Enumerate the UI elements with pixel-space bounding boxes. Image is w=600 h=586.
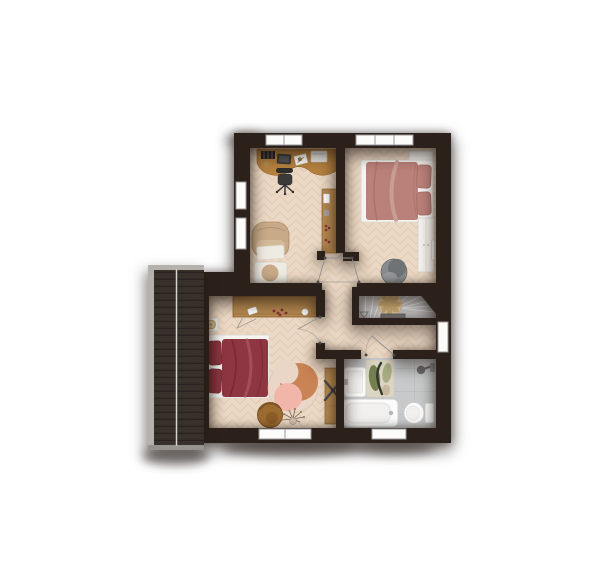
double-bed: [361, 160, 433, 222]
throw-blanket: [257, 245, 285, 260]
pillow: [417, 165, 432, 188]
wall-bathroom-left: [336, 352, 344, 432]
wall-office-bedroom1-divider: [336, 140, 345, 253]
roof-trim-bottom: [148, 445, 204, 450]
wall-bottom: [197, 428, 451, 443]
double-bed: [206, 335, 269, 398]
window-office-top: [266, 135, 302, 145]
sink-faucet: [344, 379, 348, 385]
bathroom: [342, 358, 436, 428]
tub-drain: [389, 411, 393, 415]
bath-mat: [366, 360, 394, 397]
desk-plant: [263, 161, 268, 166]
sink: [344, 367, 366, 397]
toilet: [404, 403, 434, 424]
pillow: [417, 192, 432, 215]
window-office-left-1: [236, 182, 246, 209]
laptop: [277, 154, 292, 165]
pillow: [208, 341, 222, 366]
wall-bedroom2-right-upper: [316, 290, 325, 317]
roof-section: [148, 265, 204, 450]
floor-plan-canvas: [0, 0, 600, 586]
roof-trim-top: [148, 265, 204, 270]
wall-office-bottom: [204, 283, 322, 296]
printer: [311, 151, 327, 162]
wall-mirror: [432, 240, 435, 260]
armchair: [252, 222, 289, 284]
wall-left-office: [234, 133, 250, 296]
floor-plan: [0, 0, 600, 586]
wall-bathroom-top-right: [393, 350, 440, 359]
window-bedroom1-top: [356, 135, 413, 145]
vase: [290, 418, 297, 425]
window-bathroom-bottom: [372, 429, 406, 439]
wall-stairs-bottom: [352, 318, 436, 325]
lounge-chair: [258, 403, 283, 428]
wall-shelf: [322, 189, 337, 253]
roof-trim-left: [148, 265, 154, 450]
window-office-left-2: [236, 218, 246, 249]
wall-stub-right: [343, 252, 359, 261]
bathtub: [342, 399, 398, 427]
dish: [302, 309, 308, 315]
office-chair: [276, 168, 294, 195]
window-bedroom2-bottom: [259, 429, 311, 439]
window-hallway-right: [438, 322, 448, 352]
lounge-chair: [381, 259, 407, 285]
wall-right: [436, 133, 451, 443]
pillow: [208, 369, 222, 394]
